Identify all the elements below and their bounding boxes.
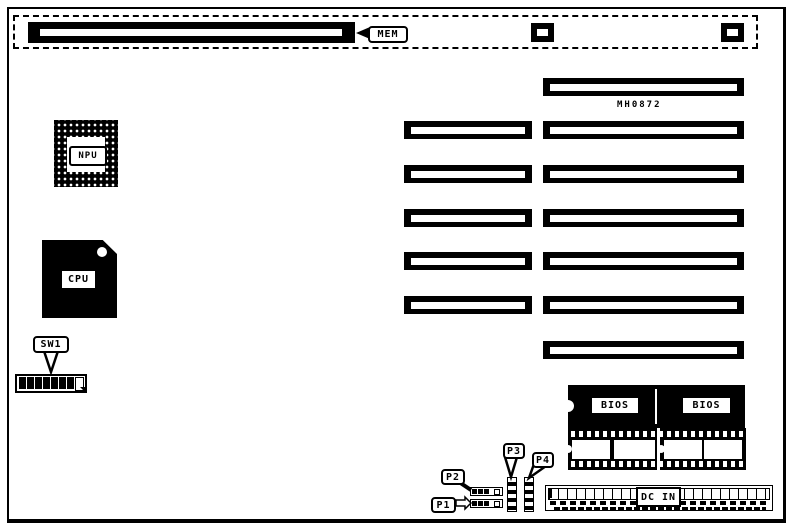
expansion-slot-left-3 xyxy=(404,209,532,227)
slot-contact-stripe xyxy=(550,171,737,178)
part-number-text: MH0872 xyxy=(617,100,662,110)
power-connector-key xyxy=(548,488,552,498)
dc-in-label: DC IN xyxy=(641,492,676,503)
slot-contact-stripe xyxy=(550,127,737,134)
p3-callout: P3 xyxy=(503,443,525,459)
expansion-slot-left-4 xyxy=(404,252,532,270)
dc-in-callout: DC IN xyxy=(636,487,681,507)
motherboard-diagram: MEM NPU CPU SW1 MH0872 BIOS BIOS xyxy=(0,0,791,527)
p4-connector xyxy=(524,477,534,512)
eprom-window-3 xyxy=(664,440,702,459)
p1-connector xyxy=(470,499,503,508)
slot-contact-stripe xyxy=(411,302,525,309)
slot-contact-stripe xyxy=(411,258,525,265)
slot-contact-stripe xyxy=(411,171,525,178)
power-connector-contacts-2 xyxy=(552,507,766,510)
p3-connector xyxy=(507,477,517,512)
p2-label: P2 xyxy=(446,472,460,483)
expansion-slot-left-2 xyxy=(404,165,532,183)
slot-contact-stripe xyxy=(550,302,737,309)
expansion-slot-right-2 xyxy=(543,121,744,139)
mem-callout: MEM xyxy=(368,26,408,43)
eprom-notch-2 xyxy=(657,445,665,453)
bios-label-right: BIOS xyxy=(683,398,730,413)
expansion-slot-right-1 xyxy=(543,78,744,96)
p4-callout: P4 xyxy=(532,452,554,468)
slot-contact-stripe xyxy=(411,127,525,134)
expansion-slot-left-1 xyxy=(404,121,532,139)
p1-end-pin xyxy=(494,501,500,507)
bios-divider xyxy=(655,389,657,424)
p1-label: P1 xyxy=(436,500,450,511)
expansion-slot-right-5 xyxy=(543,252,744,270)
p2-callout: P2 xyxy=(441,469,465,485)
p2-end-pin xyxy=(494,489,500,495)
p1-callout: P1 xyxy=(431,497,456,513)
expansion-slot-right-4 xyxy=(543,209,744,227)
expansion-slot-right-7 xyxy=(543,341,744,359)
expansion-slot-right-6 xyxy=(543,296,744,314)
p1-pins xyxy=(472,501,490,506)
slot-contact-stripe xyxy=(550,347,737,354)
expansion-slot-right-3 xyxy=(543,165,744,183)
mem-label: MEM xyxy=(377,29,398,40)
slot-contact-stripe xyxy=(411,215,525,222)
p2-connector xyxy=(470,487,503,496)
eprom-socket-row xyxy=(568,428,746,470)
slot-contact-stripe xyxy=(550,84,737,91)
bios-label-left: BIOS xyxy=(592,398,638,413)
p3-label: P3 xyxy=(507,446,521,457)
p4-label: P4 xyxy=(536,455,550,466)
bios-block: BIOS BIOS xyxy=(568,385,745,428)
p2-pins xyxy=(472,489,490,494)
eprom-window-2 xyxy=(614,440,655,459)
bios-notch xyxy=(562,400,574,412)
eprom-notch-1 xyxy=(564,445,572,453)
slot-contact-stripe xyxy=(550,258,737,265)
expansion-slot-left-5 xyxy=(404,296,532,314)
eprom-window-1 xyxy=(572,440,610,459)
sw1-callout: SW1 xyxy=(33,336,69,353)
eprom-window-4 xyxy=(704,440,742,459)
sw1-label: SW1 xyxy=(40,339,61,350)
slot-contact-stripe xyxy=(550,215,737,222)
